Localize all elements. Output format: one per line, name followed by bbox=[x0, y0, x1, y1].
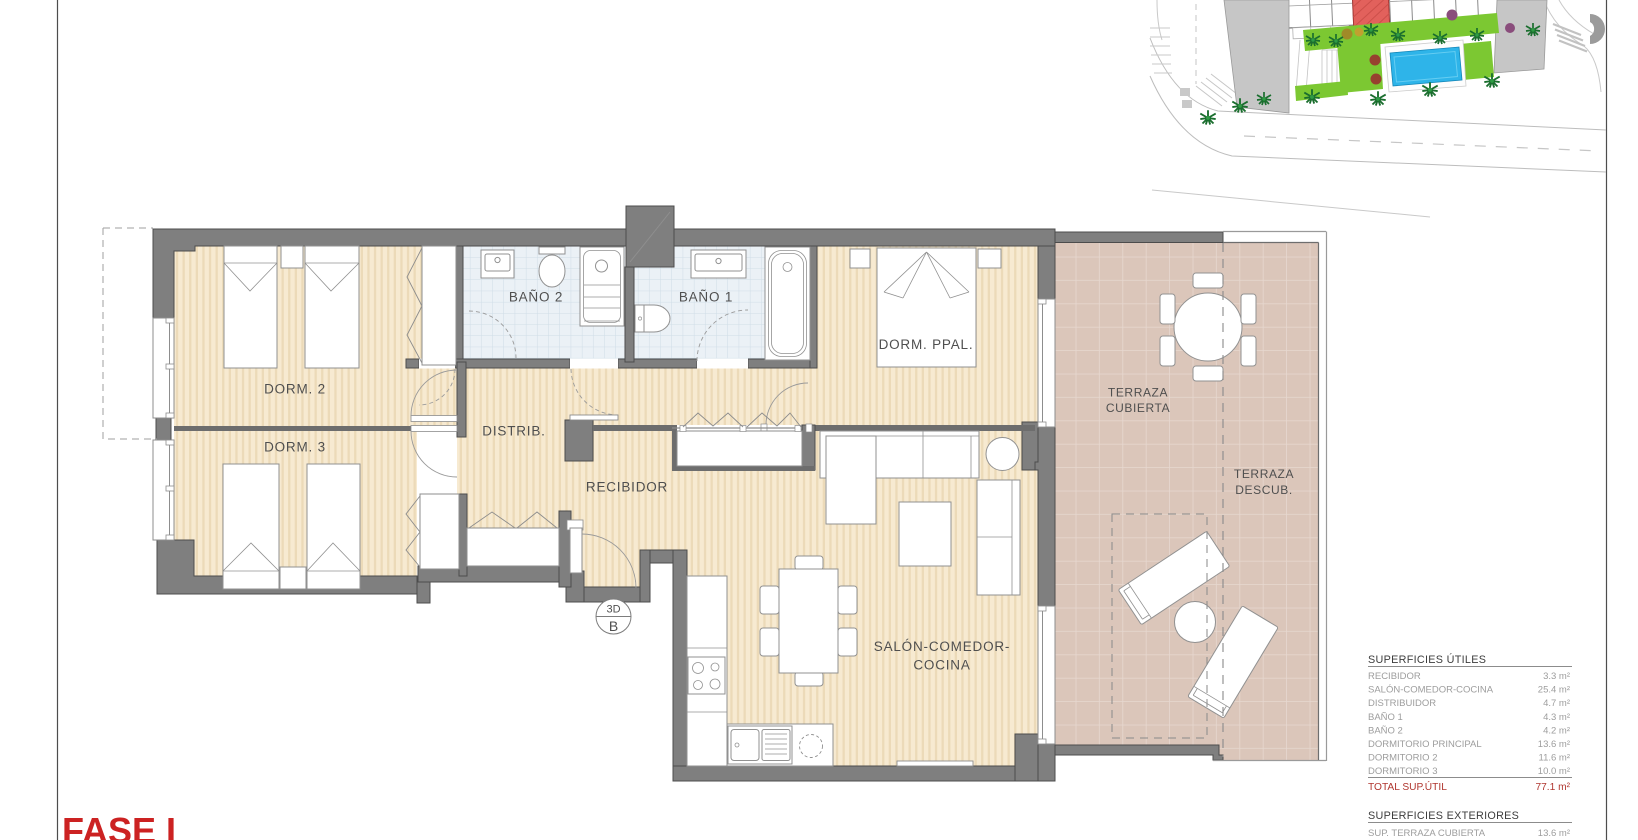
svg-text:25.4 m²: 25.4 m² bbox=[1538, 685, 1570, 696]
svg-text:DORMITORIO PRINCIPAL: DORMITORIO PRINCIPAL bbox=[1368, 739, 1482, 750]
svg-text:DORMITORIO 2: DORMITORIO 2 bbox=[1368, 753, 1438, 764]
svg-text:13.6 m²: 13.6 m² bbox=[1538, 739, 1570, 750]
svg-text:SUP. TERRAZA CUBIERTA: SUP. TERRAZA CUBIERTA bbox=[1368, 828, 1486, 839]
svg-text:10.0 m²: 10.0 m² bbox=[1538, 766, 1570, 777]
svg-text:DORM. 3: DORM. 3 bbox=[264, 440, 326, 455]
svg-text:BAÑO 1: BAÑO 1 bbox=[679, 290, 733, 305]
svg-text:11.6 m²: 11.6 m² bbox=[1538, 753, 1570, 764]
svg-text:RECIBIDOR: RECIBIDOR bbox=[1368, 671, 1421, 682]
svg-text:BAÑO 2: BAÑO 2 bbox=[1368, 725, 1403, 736]
svg-text:TERRAZA: TERRAZA bbox=[1234, 467, 1294, 481]
svg-text:TERRAZA: TERRAZA bbox=[1108, 386, 1168, 400]
svg-text:SALÓN-COMEDOR-: SALÓN-COMEDOR- bbox=[874, 639, 1010, 654]
svg-text:4.3 m²: 4.3 m² bbox=[1543, 712, 1570, 723]
svg-text:DISTRIBUIDOR: DISTRIBUIDOR bbox=[1368, 698, 1436, 709]
svg-text:SALÓN-COMEDOR-COCINA: SALÓN-COMEDOR-COCINA bbox=[1368, 685, 1494, 696]
svg-text:DISTRIB.: DISTRIB. bbox=[482, 424, 545, 439]
svg-text:13.6 m²: 13.6 m² bbox=[1538, 828, 1570, 839]
svg-text:TOTAL SUP.ÚTIL: TOTAL SUP.ÚTIL bbox=[1368, 780, 1447, 793]
svg-text:SUPERFICIES ÚTILES: SUPERFICIES ÚTILES bbox=[1368, 653, 1486, 666]
svg-text:DORM. 2: DORM. 2 bbox=[264, 382, 326, 397]
svg-text:CUBIERTA: CUBIERTA bbox=[1106, 401, 1170, 415]
svg-text:DESCUB.: DESCUB. bbox=[1235, 483, 1293, 497]
svg-text:SUPERFICIES EXTERIORES: SUPERFICIES EXTERIORES bbox=[1368, 810, 1519, 822]
svg-text:3.3 m²: 3.3 m² bbox=[1543, 671, 1570, 682]
svg-text:77.1 m²: 77.1 m² bbox=[1535, 782, 1570, 793]
svg-text:4.2 m²: 4.2 m² bbox=[1543, 725, 1570, 736]
svg-text:3D: 3D bbox=[606, 604, 620, 616]
svg-text:DORMITORIO 3: DORMITORIO 3 bbox=[1368, 766, 1438, 777]
svg-text:DORM. PPAL.: DORM. PPAL. bbox=[879, 337, 974, 352]
svg-text:BAÑO 1: BAÑO 1 bbox=[1368, 712, 1403, 723]
svg-text:4.7 m²: 4.7 m² bbox=[1543, 698, 1570, 709]
svg-text:RECIBIDOR: RECIBIDOR bbox=[586, 480, 668, 495]
svg-text:FASE I: FASE I bbox=[62, 810, 176, 840]
svg-text:BAÑO 2: BAÑO 2 bbox=[509, 290, 563, 305]
svg-text:B: B bbox=[609, 618, 618, 634]
svg-text:COCINA: COCINA bbox=[913, 658, 970, 673]
